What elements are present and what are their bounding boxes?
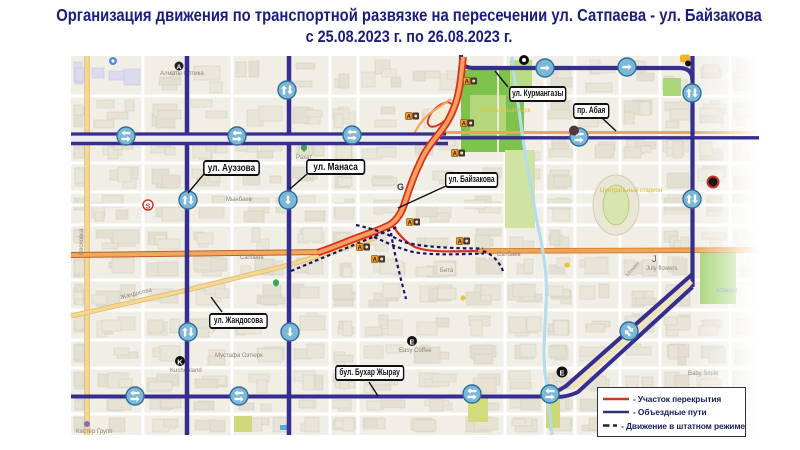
svg-text:Сатбаев: Сатбаев <box>240 255 264 261</box>
svg-text:Алматы Оптика: Алматы Оптика <box>160 71 204 77</box>
svg-text:Кастер Групп: Кастер Групп <box>76 429 113 435</box>
svg-text:G: G <box>397 182 404 192</box>
svg-text:J: J <box>652 254 657 264</box>
svg-text:July flowers: July flowers <box>646 266 677 272</box>
svg-text:Центральный стадион: Центральный стадион <box>600 187 662 194</box>
svg-text:A: A <box>408 221 413 227</box>
svg-text:A: A <box>407 115 412 121</box>
svg-text:Весновка: Весновка <box>79 228 85 255</box>
svg-text:S: S <box>145 202 150 211</box>
svg-text:A: A <box>177 64 182 71</box>
svg-text:Центральный парк: Центральный парк <box>478 107 531 114</box>
svg-text:A: A <box>462 122 467 128</box>
svg-text:E: E <box>409 338 414 347</box>
svg-text:A: A <box>358 246 363 252</box>
svg-text:Мустафа Озтюрк: Мустафа Озтюрк <box>215 353 263 359</box>
svg-text:Мынбаев: Мынбаев <box>226 197 252 203</box>
svg-text:E: E <box>559 369 564 378</box>
svg-text:Сатбаев: Сатбаев <box>497 252 521 258</box>
svg-text:Бета: Бета <box>440 268 454 274</box>
svg-text:Easy Coffee: Easy Coffee <box>399 348 432 354</box>
svg-text:A: A <box>453 152 458 158</box>
svg-text:A: A <box>373 258 378 264</box>
svg-text:K: K <box>177 358 183 367</box>
svg-text:A: A <box>458 240 463 246</box>
svg-text:A: A <box>465 80 470 86</box>
